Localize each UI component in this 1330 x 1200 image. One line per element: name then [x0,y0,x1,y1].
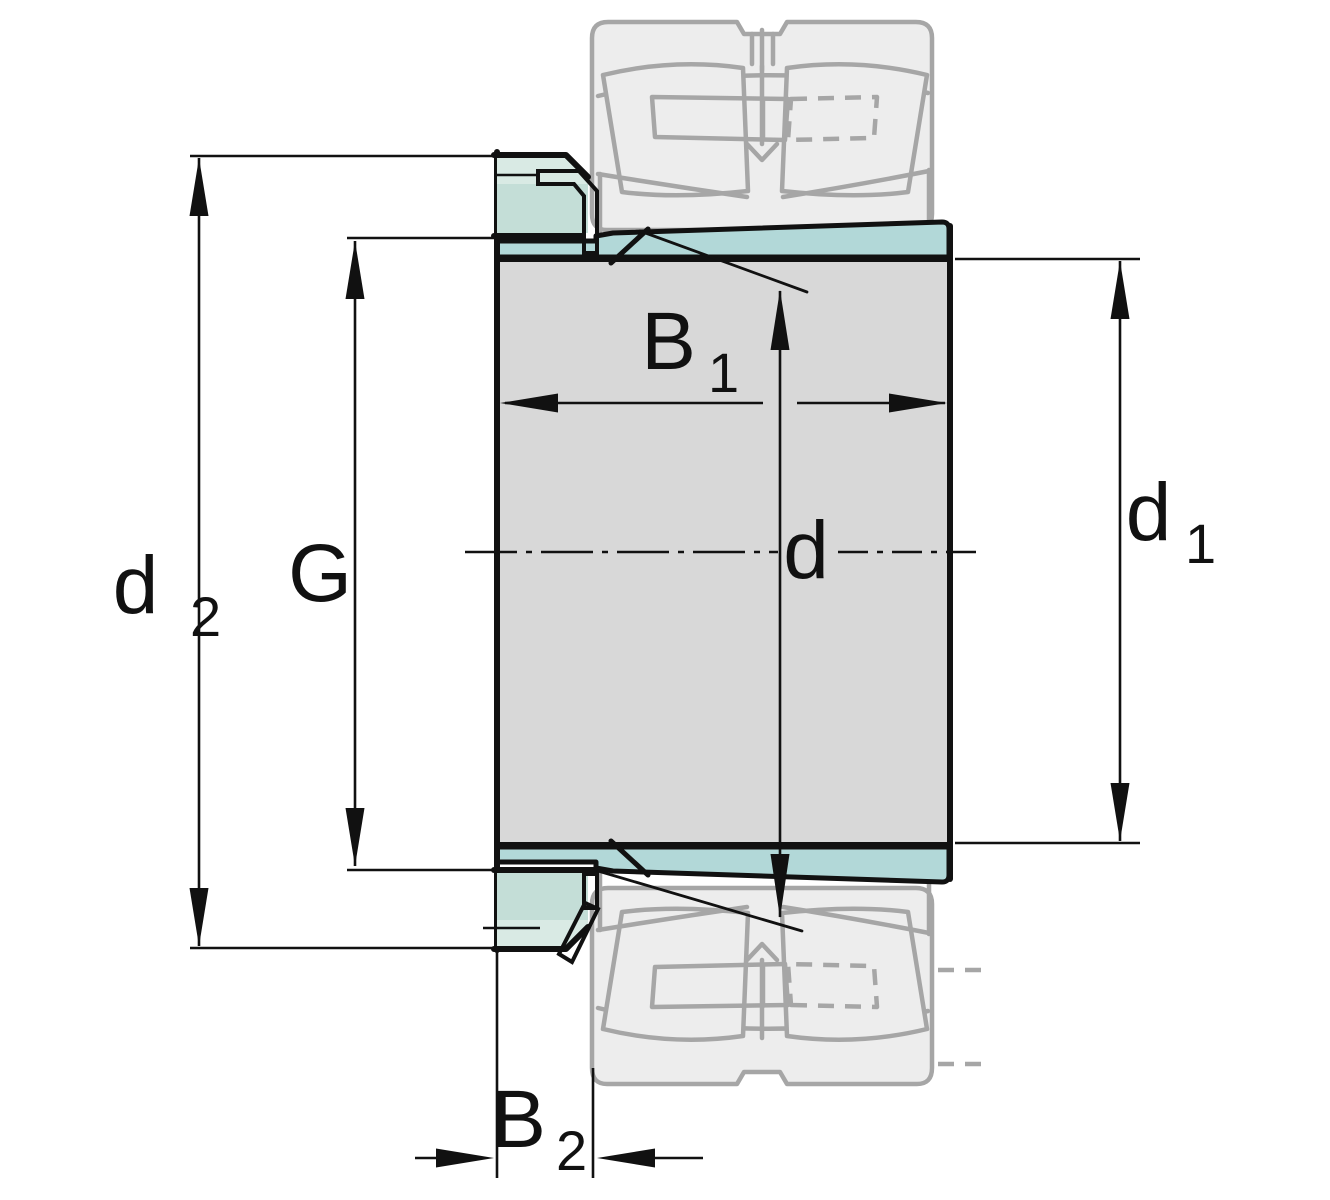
bearing-ghost-bottom [592,874,984,1084]
nut-section-face [497,871,588,920]
arrowhead-left [597,1149,655,1168]
roller-left [603,909,748,1040]
arrowhead-down [190,888,209,946]
roller-left [603,64,748,195]
bearing-ghost-top [592,22,932,231]
arrowhead-down [1111,783,1130,841]
arrowhead-down [346,808,365,866]
arrowhead-up [190,158,209,216]
dim-d1 [955,259,1140,843]
adapter-sleeve-drawing: d 2 G B 1 d d 1 B 2 [0,0,1330,1200]
arrowhead-up [346,241,365,299]
dim-g [346,238,498,870]
lock-nut-top [494,155,588,236]
label-d2: d 2 [113,540,221,648]
arrowhead-right [436,1149,494,1168]
arrowhead-up [1111,261,1130,319]
label-d1: d 1 [1126,467,1216,575]
label-g: G [288,528,352,619]
label-b2: B 2 [491,1074,587,1182]
label-d: d [783,505,829,596]
technical-drawing-canvas: d 2 G B 1 d d 1 B 2 [0,0,1330,1200]
nut-section-face [497,184,588,233]
